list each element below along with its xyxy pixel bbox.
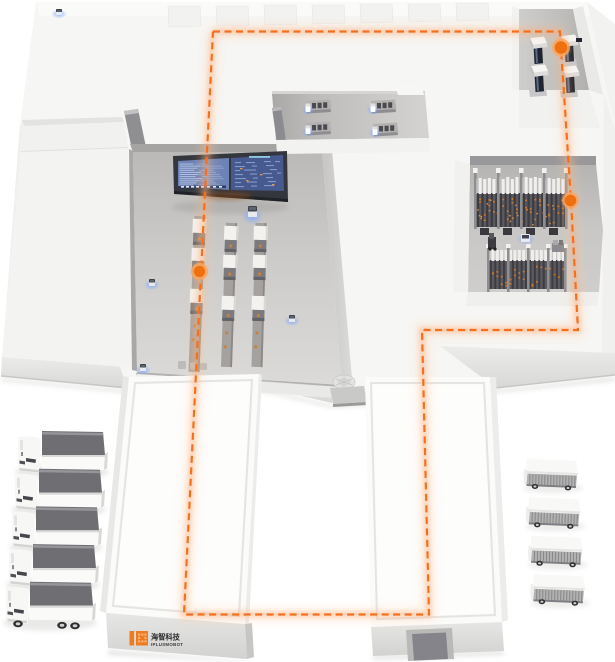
svg-text:海智科技: 海智科技 [151, 633, 181, 642]
svg-text:IPLUSMOBOT: IPLUSMOBOT [151, 642, 183, 647]
